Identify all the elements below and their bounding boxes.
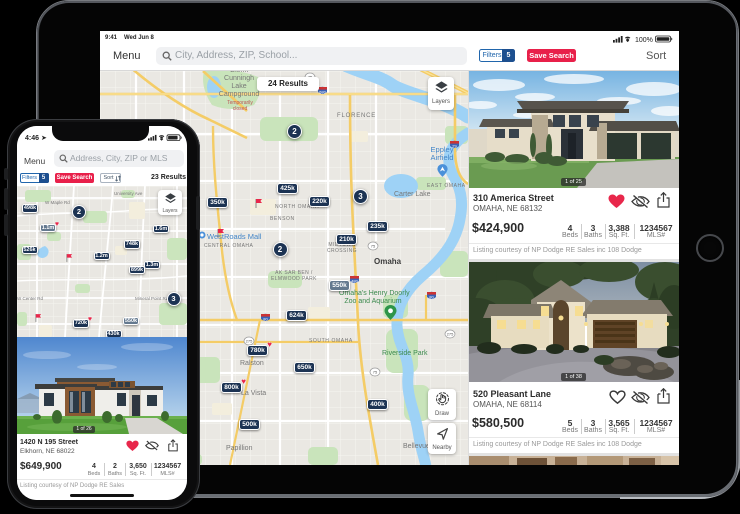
svg-text:100%: 100% (635, 37, 653, 43)
